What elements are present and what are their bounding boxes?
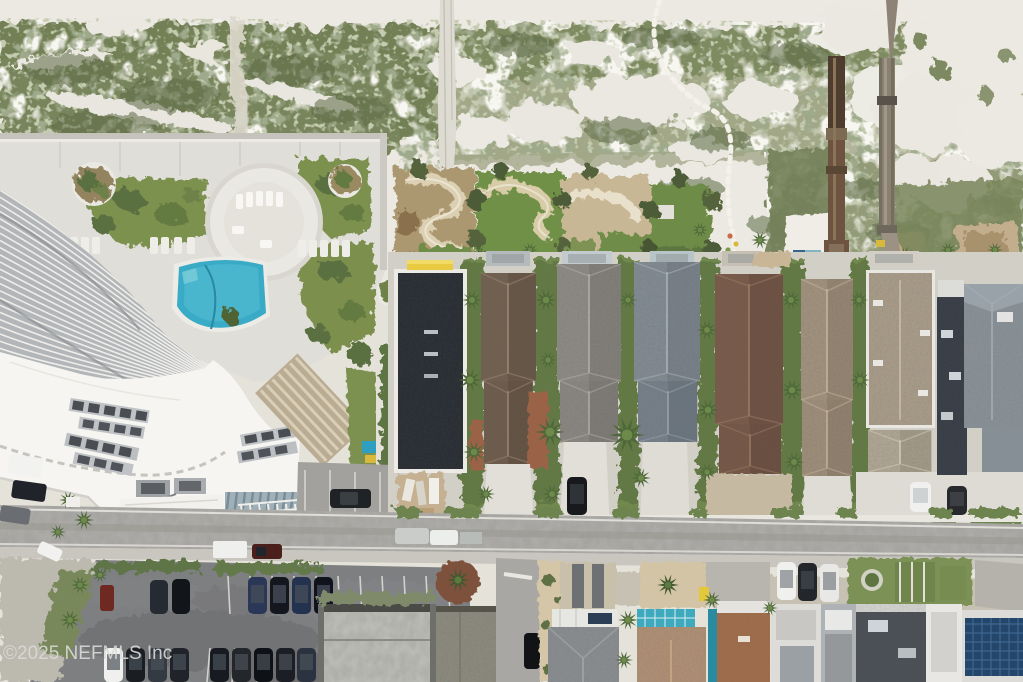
svg-text:©2025 NEFMLS Inc: ©2025 NEFMLS Inc (3, 643, 172, 664)
